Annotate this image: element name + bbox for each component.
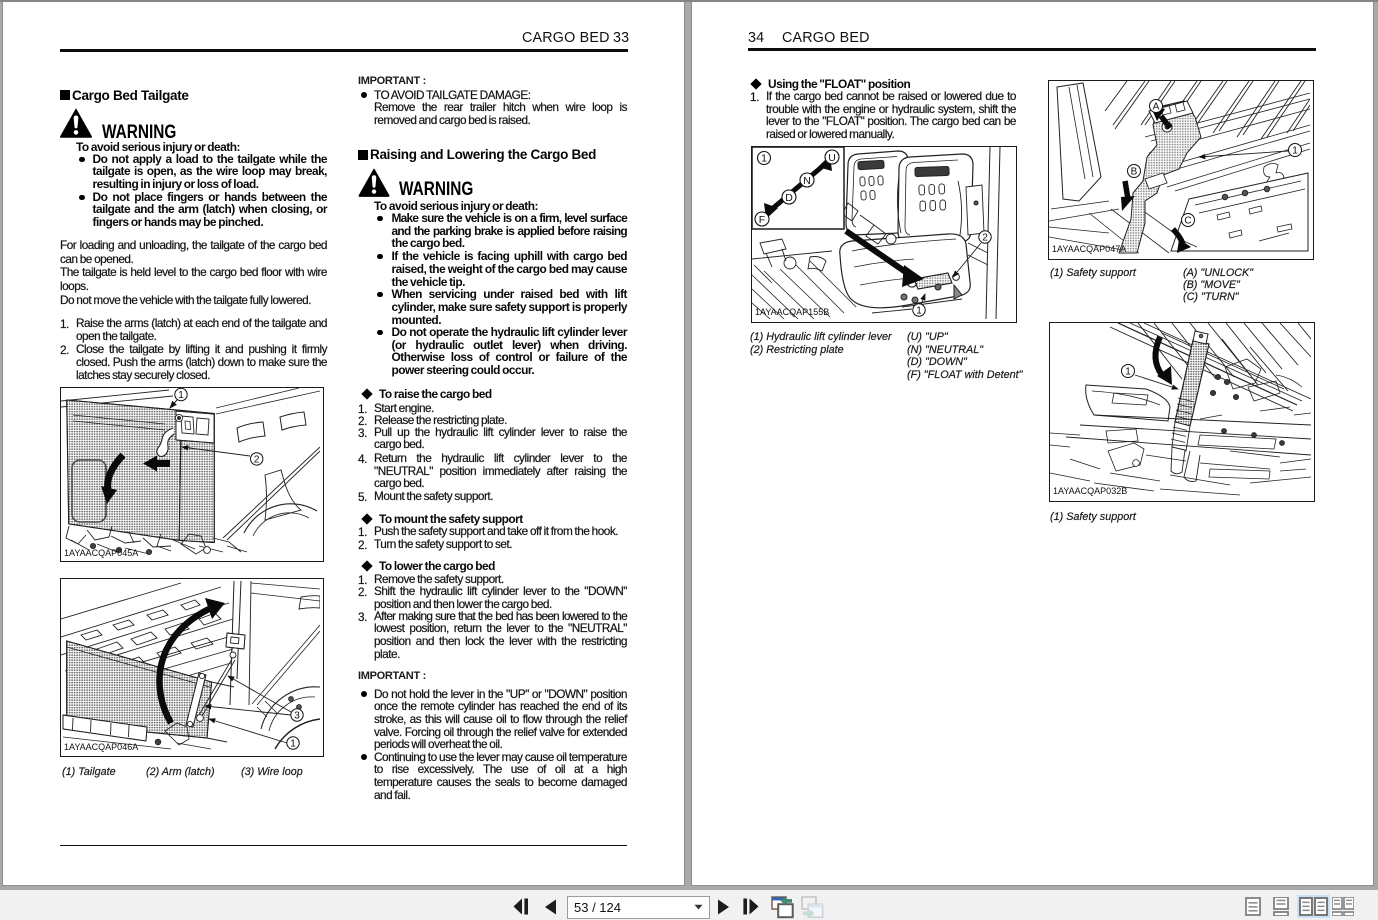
svg-text:U: U [828, 152, 836, 164]
svg-text:1: 1 [1125, 367, 1131, 378]
svg-text:A: A [1153, 102, 1160, 113]
svg-text:1AYAACQAP045A: 1AYAACQAP045A [64, 548, 138, 558]
svg-text:N: N [803, 175, 811, 187]
svg-text:D: D [785, 192, 793, 204]
svg-text:C: C [1184, 216, 1191, 227]
svg-text:1: 1 [916, 306, 922, 317]
svg-text:1: 1 [178, 390, 184, 401]
svg-text:F: F [759, 214, 765, 226]
svg-text:1AYAACQAP046A: 1AYAACQAP046A [64, 742, 138, 752]
svg-text:3: 3 [294, 711, 300, 722]
svg-text:2: 2 [254, 454, 260, 465]
svg-text:B: B [1131, 167, 1138, 178]
svg-text:2: 2 [982, 233, 988, 244]
svg-text:1AYAACQAP032B: 1AYAACQAP032B [1053, 486, 1127, 496]
svg-text:1AYAACQAP155B: 1AYAACQAP155B [755, 307, 829, 317]
svg-text:1: 1 [290, 739, 296, 750]
svg-text:1: 1 [761, 153, 767, 165]
svg-text:1AYAACQAP047A: 1AYAACQAP047A [1052, 244, 1126, 254]
svg-text:1: 1 [1292, 146, 1298, 157]
